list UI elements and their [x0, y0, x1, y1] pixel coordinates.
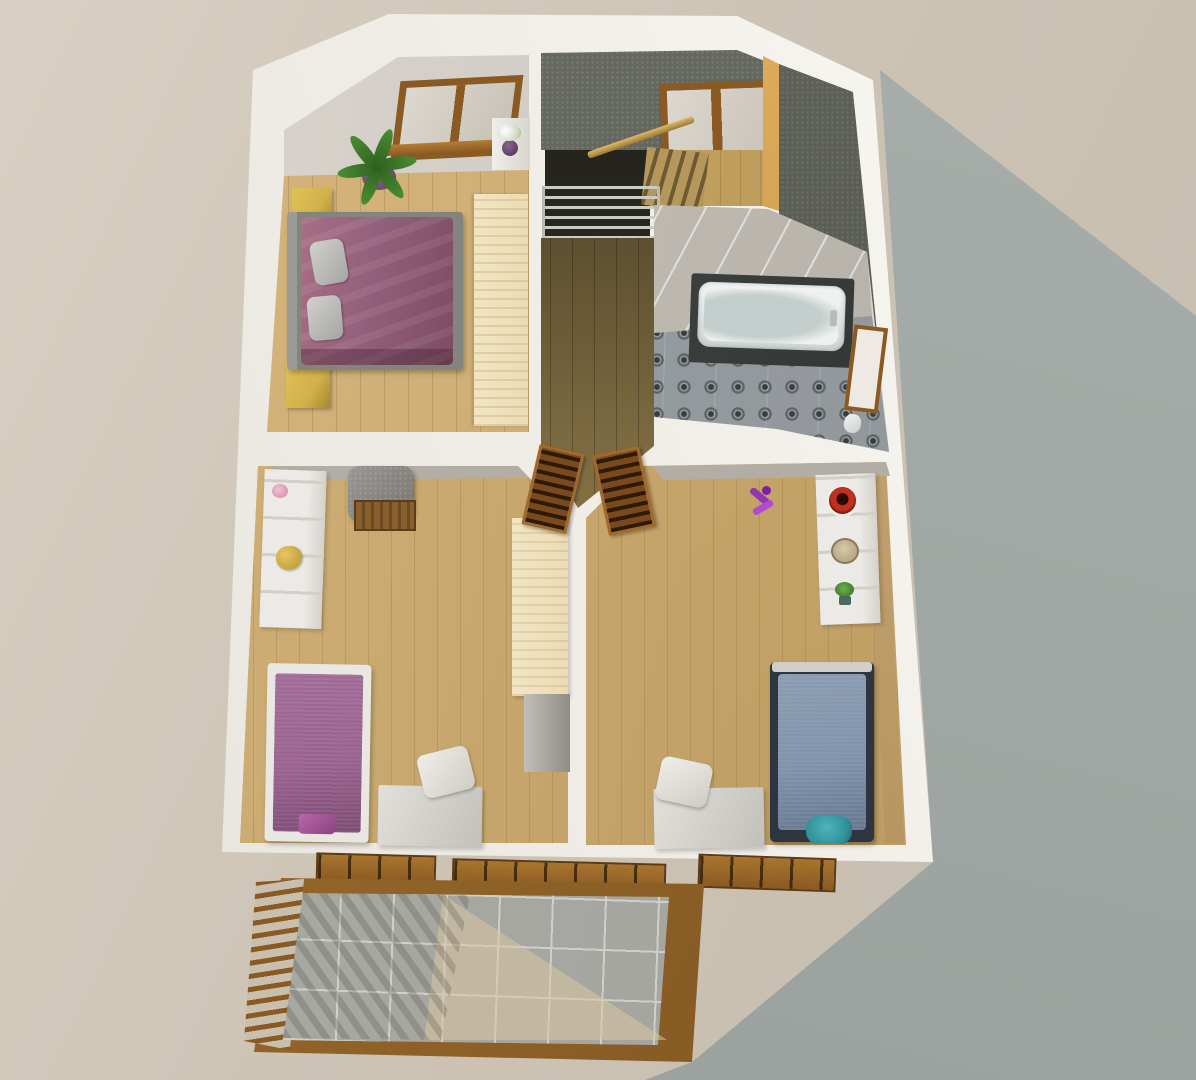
blue-mattress — [778, 674, 866, 830]
teal-stool — [806, 816, 852, 844]
wooden-basket — [354, 500, 416, 531]
floorplan-render — [0, 0, 1196, 1080]
bed-headboard — [772, 662, 872, 672]
double-bed-duvet — [301, 217, 453, 365]
wardrobe-base — [524, 694, 570, 772]
flower-pot — [502, 140, 518, 156]
bathtub-faucet — [830, 310, 838, 326]
red-decor-bowl — [826, 484, 859, 517]
flower-bloom — [497, 124, 521, 141]
decor-bowl — [831, 538, 859, 564]
facade-window — [697, 854, 836, 893]
single-bed-purple — [264, 663, 371, 843]
small-plant — [835, 582, 855, 608]
bathtub — [697, 281, 846, 351]
plant-pot — [839, 596, 851, 605]
single-bed-blue — [770, 662, 874, 842]
toy-part — [762, 486, 771, 495]
plant-leaf — [835, 582, 854, 597]
pillow — [308, 237, 349, 286]
master-wardrobe — [474, 194, 528, 426]
purple-toy-trike — [742, 486, 786, 534]
wardrobe — [512, 518, 568, 696]
purple-pillow — [299, 814, 335, 835]
potted-plant — [345, 133, 411, 199]
pink-flower — [272, 484, 288, 498]
pillow — [306, 295, 344, 342]
stair-guard-railing — [542, 186, 660, 238]
purple-mattress — [273, 673, 364, 833]
